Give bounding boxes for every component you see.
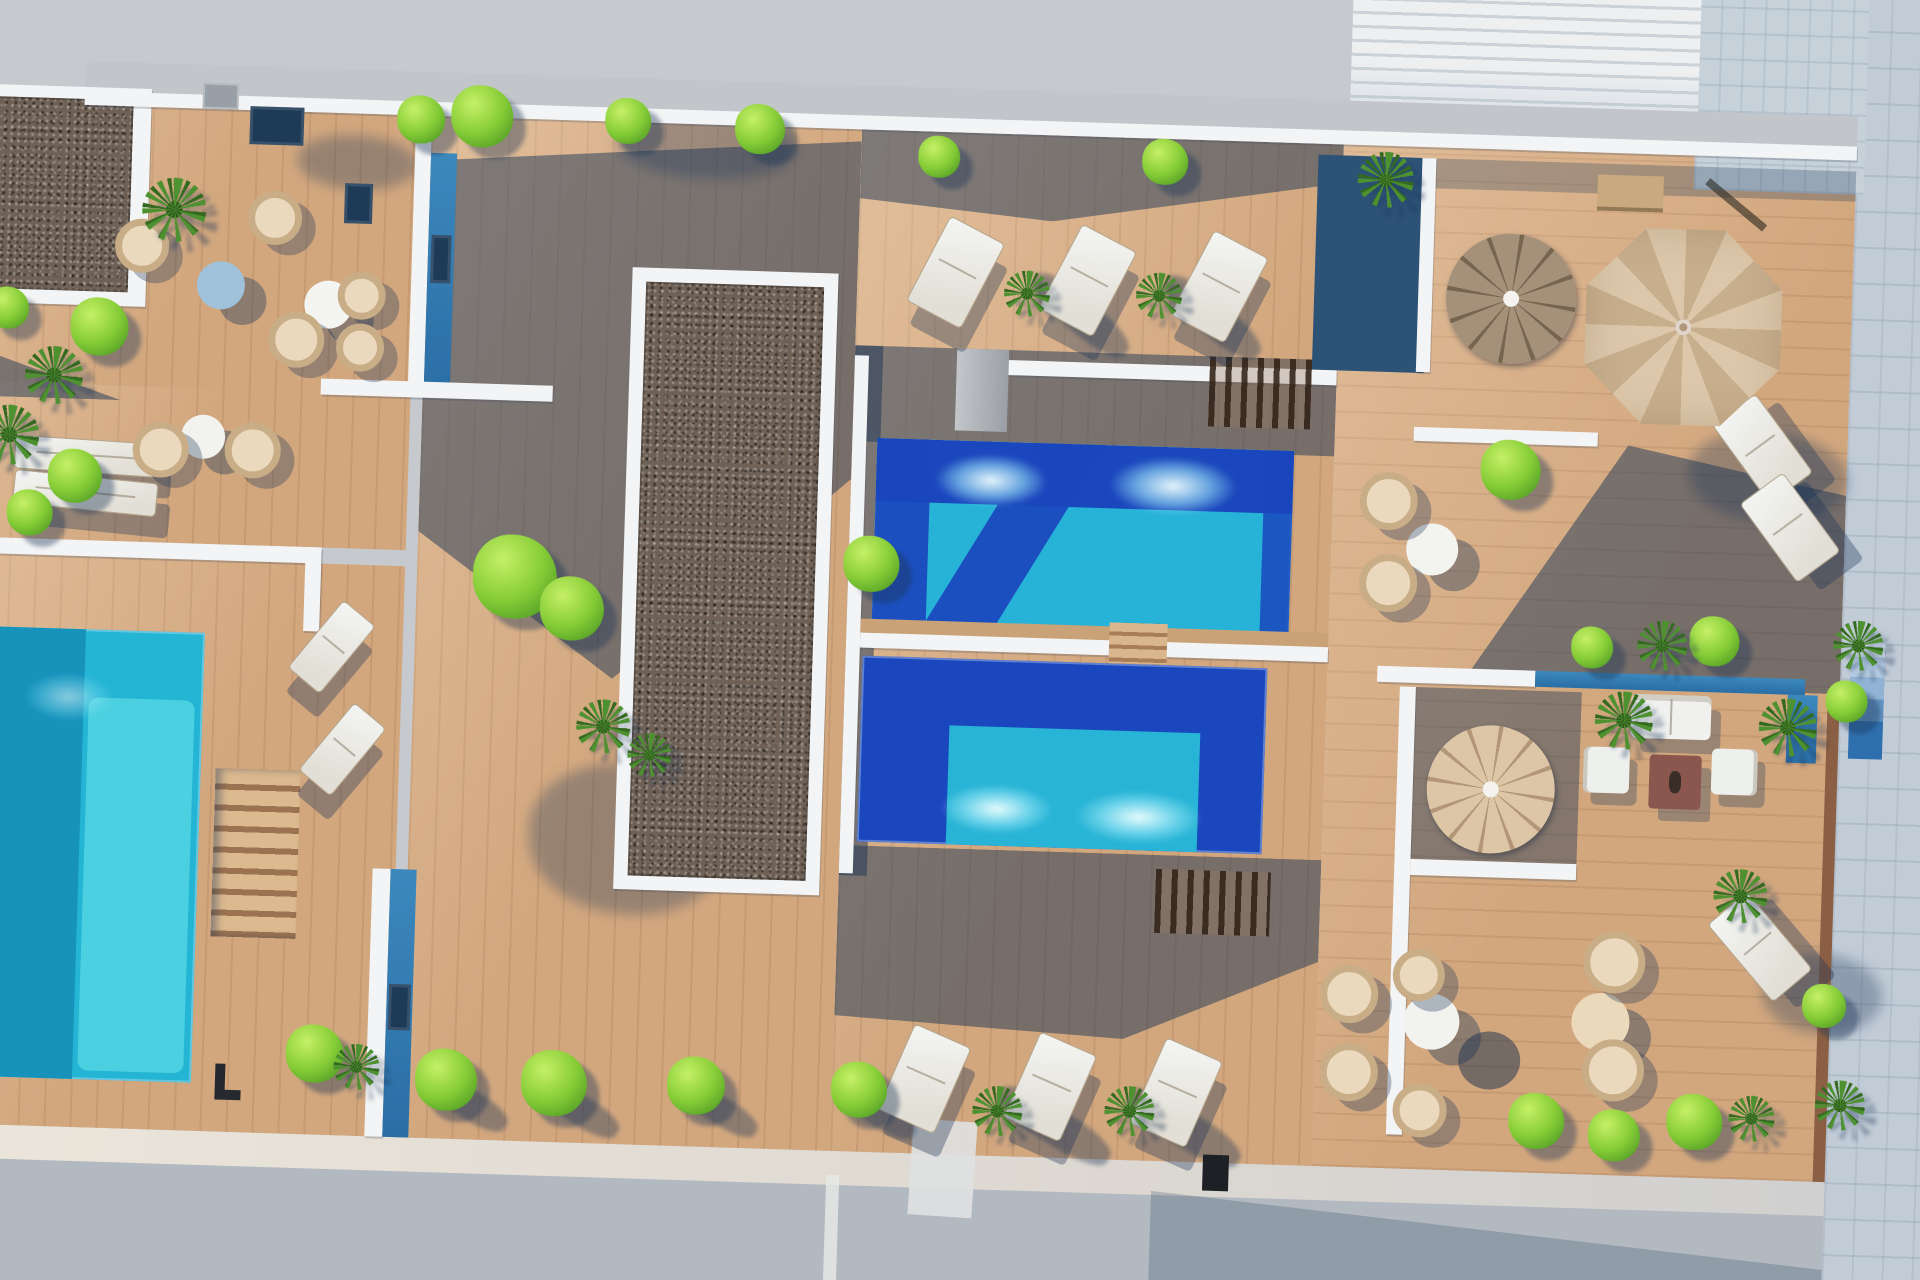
bench-top-left <box>249 106 304 146</box>
coffee-table-decor <box>1669 771 1682 793</box>
pool-steps-slatted-bottom <box>1154 869 1271 937</box>
pool-steps-slatted-top <box>1208 356 1312 429</box>
stairwell-notch-leftpool <box>388 984 411 1031</box>
main-pool-upper <box>872 438 1295 635</box>
rooftop-ac-unit <box>202 83 239 110</box>
planter-box-left <box>344 183 373 224</box>
sidewalk-tiles-top <box>1694 0 1871 195</box>
gravel-roof-topleft <box>0 94 134 293</box>
rooftop-render <box>0 0 1920 1280</box>
gravel-roof-center <box>628 282 825 881</box>
stairwell-notch-left <box>430 235 451 284</box>
street-white-slab <box>907 1118 977 1218</box>
pool1-navy-right <box>1259 450 1294 635</box>
side-pool-left <box>0 626 205 1082</box>
outdoor-counter <box>1597 174 1664 212</box>
trash-bin <box>1202 1155 1229 1192</box>
armchair-left <box>1583 746 1630 793</box>
armchair-right <box>1711 748 1758 795</box>
pool-steps-wood <box>1109 622 1168 664</box>
concrete-pillar <box>955 348 1010 432</box>
wall-lowerleft-vertical <box>303 547 322 631</box>
side-pool-shallow-inset <box>77 697 195 1074</box>
rooftop-scene <box>0 0 1920 1280</box>
wood-stairs-leftpool <box>210 768 300 939</box>
pool-shower-base <box>214 1089 240 1100</box>
main-pool-lower <box>857 656 1268 855</box>
